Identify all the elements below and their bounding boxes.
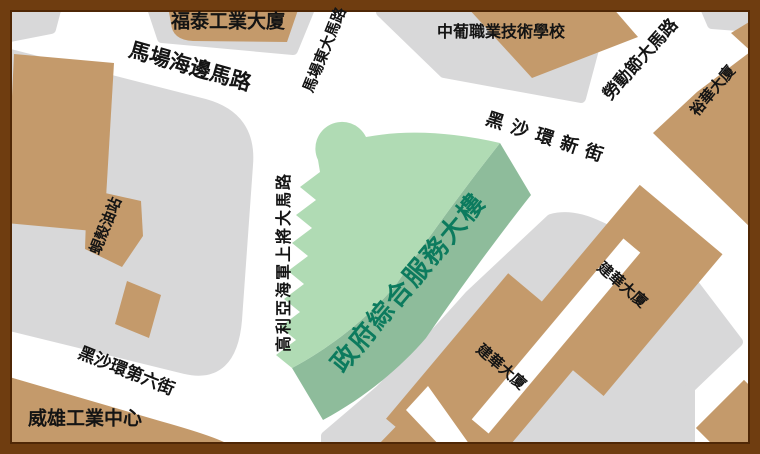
block-top-left-corner	[10, 10, 56, 37]
futai-building	[168, 7, 299, 42]
map-canvas	[0, 0, 760, 454]
district-map: 福泰工業大廈 馬場海邊馬路 馬場東大馬路 中葡職業技術學校 勞動節大馬路 裕華大…	[0, 0, 760, 454]
weixiong-area	[6, 376, 233, 448]
block-northeast-corner	[706, 10, 751, 27]
yuhua-building	[653, 49, 754, 231]
